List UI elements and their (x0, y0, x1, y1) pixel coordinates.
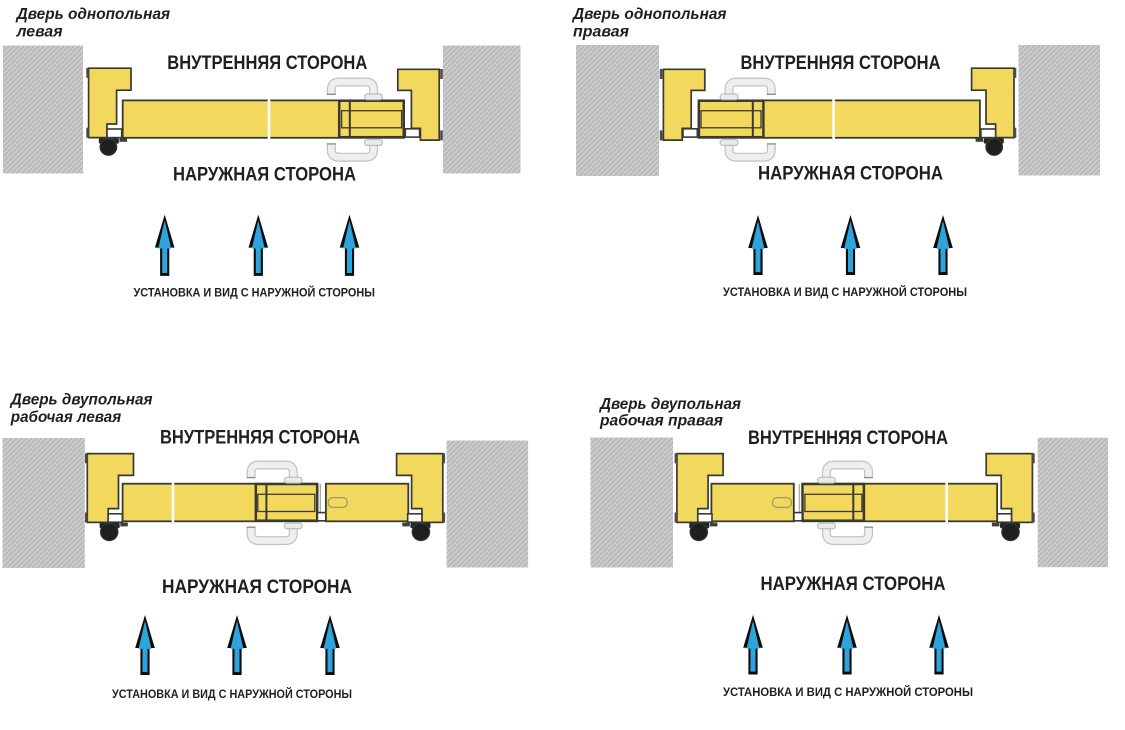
svg-text:ВНУТРЕННЯЯ СТОРОНА: ВНУТРЕННЯЯ СТОРОНА (748, 427, 948, 449)
svg-text:рабочая левая: рабочая левая (10, 409, 121, 426)
svg-text:УСТАНОВКА И ВИД С НАРУЖНОЙ СТО: УСТАНОВКА И ВИД С НАРУЖНОЙ СТОРОНЫ (723, 684, 973, 699)
svg-text:левая: левая (16, 23, 63, 40)
svg-text:НАРУЖНАЯ СТОРОНА: НАРУЖНАЯ СТОРОНА (758, 163, 943, 185)
svg-text:правая: правая (573, 23, 629, 40)
svg-text:УСТАНОВКА И ВИД С НАРУЖНОЙ СТО: УСТАНОВКА И ВИД С НАРУЖНОЙ СТОРОНЫ (112, 686, 352, 701)
svg-text:Дверь двупольная: Дверь двупольная (9, 392, 153, 409)
svg-text:УСТАНОВКА И ВИД С НАРУЖНОЙ СТО: УСТАНОВКА И ВИД С НАРУЖНОЙ СТОРОНЫ (133, 285, 375, 300)
svg-text:ВНУТРЕННЯЯ СТОРОНА: ВНУТРЕННЯЯ СТОРОНА (167, 52, 367, 74)
svg-text:НАРУЖНАЯ СТОРОНА: НАРУЖНАЯ СТОРОНА (173, 164, 356, 186)
svg-text:Дверь однопольная: Дверь однопольная (15, 6, 170, 23)
svg-text:ВНУТРЕННЯЯ СТОРОНА: ВНУТРЕННЯЯ СТОРОНА (741, 52, 941, 74)
svg-text:Дверь однопольная: Дверь однопольная (571, 6, 726, 23)
svg-text:НАРУЖНАЯ СТОРОНА: НАРУЖНАЯ СТОРОНА (162, 576, 352, 598)
svg-text:Дверь двупольная: Дверь двупольная (598, 396, 741, 413)
svg-text:рабочая правая: рабочая правая (599, 412, 723, 429)
svg-text:ВНУТРЕННЯЯ СТОРОНА: ВНУТРЕННЯЯ СТОРОНА (160, 427, 360, 449)
svg-text:НАРУЖНАЯ СТОРОНА: НАРУЖНАЯ СТОРОНА (761, 573, 946, 595)
svg-text:УСТАНОВКА И ВИД С НАРУЖНОЙ СТО: УСТАНОВКА И ВИД С НАРУЖНОЙ СТОРОНЫ (723, 284, 967, 299)
